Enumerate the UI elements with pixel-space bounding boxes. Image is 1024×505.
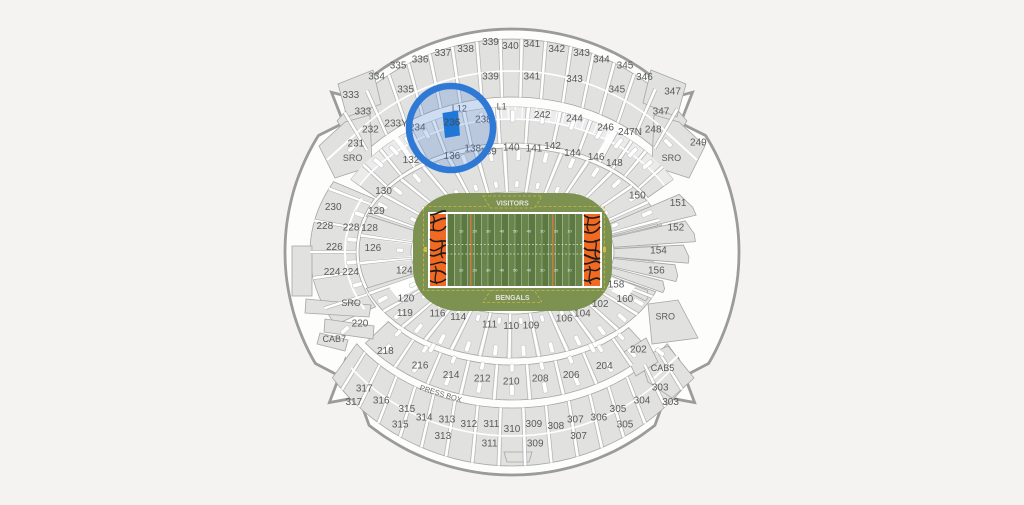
svg-text:333: 333 — [355, 107, 372, 118]
svg-text:50: 50 — [513, 268, 518, 273]
svg-text:305: 305 — [610, 404, 627, 415]
svg-text:148: 148 — [606, 158, 623, 169]
svg-text:130: 130 — [375, 186, 392, 197]
svg-text:114: 114 — [450, 312, 466, 323]
svg-text:314: 314 — [416, 413, 433, 424]
svg-text:146: 146 — [588, 152, 605, 163]
svg-text:30: 30 — [540, 268, 545, 273]
svg-text:333: 333 — [343, 90, 360, 101]
svg-text:226: 226 — [326, 242, 343, 253]
svg-text:339: 339 — [482, 71, 499, 82]
svg-text:249: 249 — [690, 138, 707, 149]
svg-text:216: 216 — [412, 361, 429, 372]
svg-text:343: 343 — [566, 74, 583, 85]
svg-text:316: 316 — [373, 396, 390, 407]
svg-text:120: 120 — [398, 293, 415, 304]
svg-text:308: 308 — [548, 421, 565, 432]
svg-text:208: 208 — [532, 373, 549, 384]
svg-text:347: 347 — [664, 87, 681, 98]
svg-text:341: 341 — [524, 71, 541, 82]
svg-text:313: 313 — [439, 414, 456, 425]
svg-text:156: 156 — [648, 265, 665, 276]
svg-text:30: 30 — [540, 229, 545, 234]
svg-text:SRO: SRO — [343, 153, 363, 163]
svg-text:SRO: SRO — [662, 153, 682, 163]
svg-text:206: 206 — [563, 370, 580, 381]
svg-text:111: 111 — [482, 320, 498, 331]
svg-text:230: 230 — [325, 202, 342, 213]
svg-text:142: 142 — [544, 141, 561, 152]
svg-text:20: 20 — [554, 268, 559, 273]
svg-text:124: 124 — [396, 265, 413, 276]
svg-text:233Y: 233Y — [384, 119, 408, 130]
svg-text:10: 10 — [459, 268, 464, 273]
svg-text:20: 20 — [472, 268, 477, 273]
svg-text:315: 315 — [392, 420, 409, 431]
svg-text:218: 218 — [377, 346, 394, 357]
svg-text:248: 248 — [645, 124, 662, 135]
svg-text:140: 140 — [503, 143, 520, 154]
svg-text:224: 224 — [324, 267, 341, 278]
svg-text:104: 104 — [574, 309, 591, 320]
svg-text:158: 158 — [608, 279, 625, 290]
svg-text:141: 141 — [526, 143, 543, 154]
svg-text:116: 116 — [430, 309, 446, 320]
svg-text:210: 210 — [503, 377, 520, 388]
svg-text:336: 336 — [412, 55, 429, 66]
svg-text:144: 144 — [564, 148, 581, 159]
svg-text:110: 110 — [503, 321, 519, 332]
svg-text:334: 334 — [368, 71, 385, 82]
svg-text:345: 345 — [617, 61, 634, 72]
svg-text:106: 106 — [556, 314, 573, 325]
svg-text:20: 20 — [472, 229, 477, 234]
svg-text:152: 152 — [668, 222, 685, 233]
svg-text:SRO: SRO — [341, 298, 361, 308]
svg-text:236: 236 — [444, 118, 461, 129]
svg-text:10: 10 — [567, 268, 572, 273]
svg-text:309: 309 — [527, 438, 544, 449]
svg-text:306: 306 — [591, 413, 608, 424]
svg-text:338: 338 — [457, 44, 474, 55]
svg-text:341: 341 — [524, 39, 541, 50]
svg-text:10: 10 — [459, 229, 464, 234]
svg-text:228: 228 — [316, 221, 333, 232]
svg-text:344: 344 — [593, 55, 610, 66]
svg-text:347: 347 — [653, 107, 670, 118]
svg-text:202: 202 — [630, 344, 647, 355]
svg-text:311: 311 — [482, 438, 498, 449]
svg-text:40: 40 — [500, 229, 505, 234]
svg-text:204: 204 — [596, 361, 613, 372]
svg-text:311: 311 — [483, 419, 499, 430]
svg-text:303: 303 — [652, 383, 669, 394]
svg-text:317: 317 — [356, 383, 373, 394]
svg-text:228: 228 — [343, 222, 360, 233]
svg-text:CAB7: CAB7 — [323, 334, 347, 344]
svg-text:343: 343 — [573, 48, 590, 59]
svg-text:303: 303 — [662, 397, 679, 408]
svg-text:20: 20 — [554, 229, 559, 234]
svg-text:10: 10 — [567, 229, 572, 234]
svg-text:126: 126 — [365, 243, 382, 254]
svg-text:40: 40 — [527, 229, 532, 234]
svg-text:307: 307 — [567, 414, 584, 425]
svg-text:30: 30 — [486, 268, 491, 273]
svg-text:150: 150 — [629, 190, 646, 201]
svg-text:151: 151 — [670, 198, 687, 209]
svg-text:346: 346 — [636, 72, 653, 83]
svg-text:244: 244 — [566, 114, 583, 125]
svg-text:160: 160 — [617, 294, 634, 305]
svg-text:335: 335 — [397, 85, 414, 96]
svg-text:232: 232 — [362, 125, 379, 136]
svg-text:154: 154 — [650, 245, 667, 256]
svg-text:345: 345 — [608, 85, 625, 96]
svg-text:231: 231 — [348, 138, 365, 149]
svg-text:307: 307 — [570, 431, 587, 442]
svg-text:220: 220 — [352, 319, 369, 330]
svg-text:335: 335 — [390, 61, 407, 72]
svg-text:129: 129 — [368, 206, 385, 217]
svg-text:CAB5: CAB5 — [651, 363, 675, 373]
svg-text:247N: 247N — [618, 127, 642, 138]
svg-text:119: 119 — [397, 308, 413, 319]
svg-text:337: 337 — [434, 48, 451, 59]
svg-text:304: 304 — [634, 396, 651, 407]
svg-text:309: 309 — [526, 419, 543, 430]
svg-text:40: 40 — [500, 268, 505, 273]
svg-text:109: 109 — [523, 320, 540, 331]
svg-text:40: 40 — [527, 268, 532, 273]
svg-text:50: 50 — [513, 229, 518, 234]
svg-text:128: 128 — [361, 223, 378, 234]
svg-text:212: 212 — [474, 373, 491, 384]
svg-text:315: 315 — [398, 404, 415, 415]
svg-text:342: 342 — [548, 44, 565, 55]
svg-text:30: 30 — [486, 229, 491, 234]
svg-text:312: 312 — [461, 419, 478, 430]
svg-text:305: 305 — [617, 420, 634, 431]
svg-text:102: 102 — [592, 299, 609, 310]
svg-text:BENGALS: BENGALS — [495, 295, 530, 302]
svg-text:SRO: SRO — [656, 311, 676, 321]
svg-text:VISITORS: VISITORS — [496, 201, 529, 208]
svg-text:340: 340 — [502, 41, 519, 52]
svg-text:224: 224 — [342, 267, 359, 278]
svg-text:339: 339 — [482, 37, 499, 48]
svg-text:242: 242 — [534, 110, 551, 121]
svg-text:214: 214 — [443, 370, 460, 381]
svg-text:310: 310 — [504, 424, 521, 435]
svg-text:L1: L1 — [497, 101, 507, 111]
svg-text:313: 313 — [434, 431, 451, 442]
svg-text:246: 246 — [597, 123, 614, 134]
svg-text:317: 317 — [345, 397, 362, 408]
